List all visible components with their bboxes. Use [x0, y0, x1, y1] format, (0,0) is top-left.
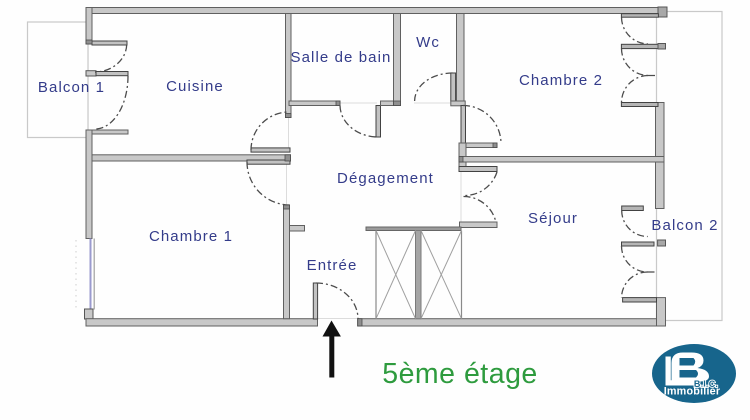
svg-text:5ème étage: 5ème étage [382, 358, 538, 390]
svg-text:Balcon 1: Balcon 1 [38, 79, 105, 96]
svg-text:Balcon 2: Balcon 2 [651, 217, 718, 234]
svg-text:Immobilier: Immobilier [664, 386, 721, 398]
svg-text:Salle de bain: Salle de bain [290, 49, 391, 66]
svg-text:Dégagement: Dégagement [337, 170, 434, 187]
svg-text:Chambre 1: Chambre 1 [149, 228, 233, 245]
svg-text:Entrée: Entrée [307, 257, 358, 274]
svg-text:Wc: Wc [416, 34, 440, 51]
svg-text:Séjour: Séjour [528, 210, 578, 227]
svg-text:Cuisine: Cuisine [166, 78, 224, 95]
svg-text:Chambre 2: Chambre 2 [519, 72, 603, 89]
